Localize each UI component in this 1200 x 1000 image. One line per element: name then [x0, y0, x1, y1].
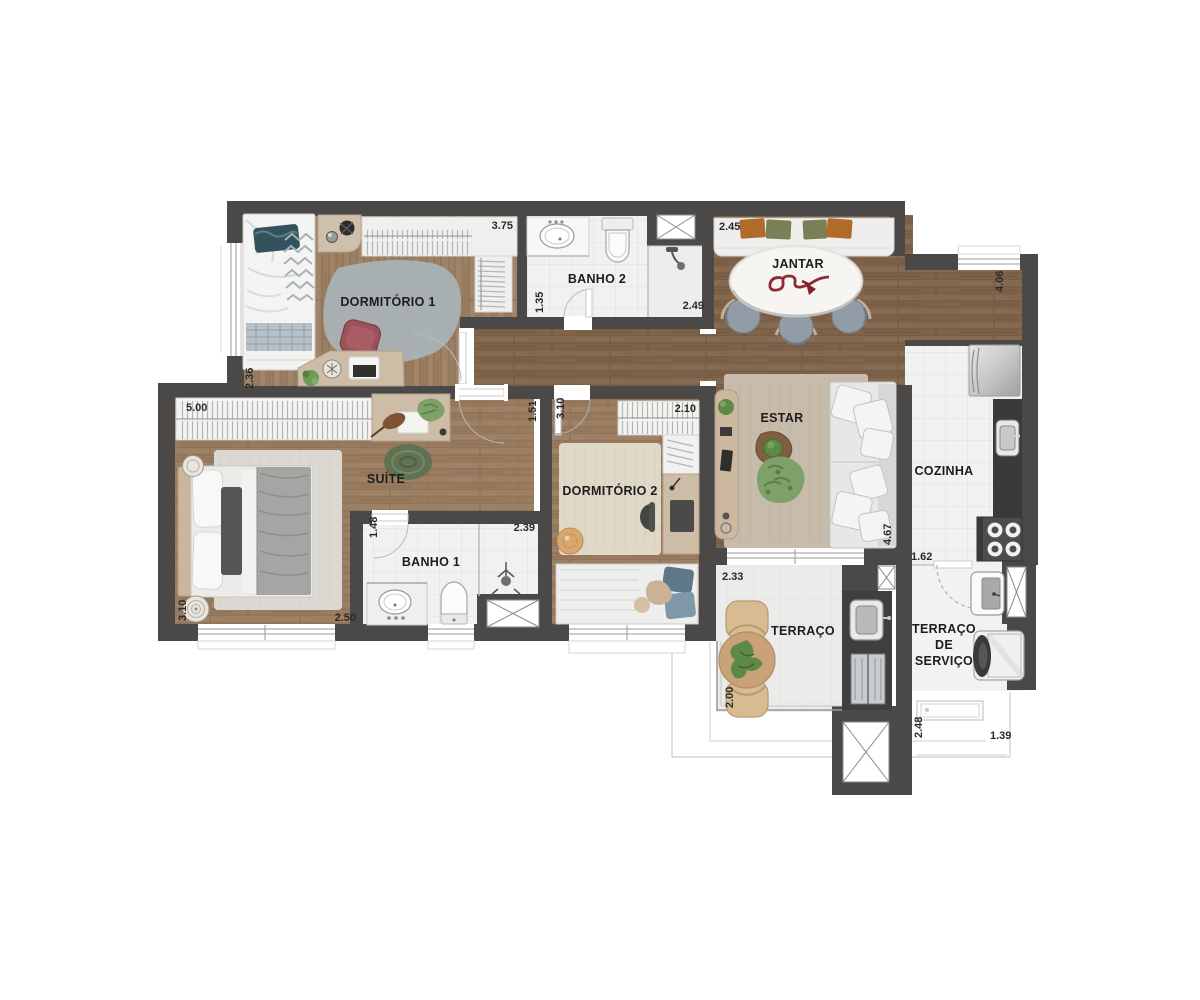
svg-text:SUÍTE: SUÍTE	[367, 471, 405, 486]
svg-text:DE: DE	[935, 638, 953, 652]
svg-text:1.62: 1.62	[911, 551, 932, 563]
svg-text:1.35: 1.35	[534, 292, 546, 313]
svg-text:JANTAR: JANTAR	[772, 257, 824, 271]
svg-text:4.06: 4.06	[994, 271, 1006, 292]
svg-text:2.50: 2.50	[335, 612, 356, 624]
svg-text:SERVIÇO: SERVIÇO	[915, 654, 973, 668]
svg-text:1.39: 1.39	[990, 730, 1011, 742]
svg-text:2.39: 2.39	[514, 522, 535, 534]
svg-text:2.36: 2.36	[244, 368, 256, 389]
svg-text:5.00: 5.00	[186, 402, 207, 414]
svg-text:2.48: 2.48	[913, 717, 925, 738]
svg-text:3.10: 3.10	[555, 398, 567, 419]
svg-text:DORMITÓRIO 2: DORMITÓRIO 2	[562, 483, 657, 498]
svg-text:COZINHA: COZINHA	[914, 464, 973, 478]
svg-text:3.75: 3.75	[492, 220, 513, 232]
svg-text:2.00: 2.00	[724, 687, 736, 708]
svg-text:3.10: 3.10	[177, 600, 189, 621]
svg-text:BANHO 1: BANHO 1	[402, 555, 460, 569]
svg-text:DORMITÓRIO 1: DORMITÓRIO 1	[340, 294, 435, 309]
svg-text:2.49: 2.49	[683, 300, 704, 312]
svg-text:4.67: 4.67	[882, 524, 894, 545]
svg-text:BANHO 2: BANHO 2	[568, 272, 626, 286]
svg-text:1.48: 1.48	[368, 517, 380, 538]
svg-text:TERRAÇO: TERRAÇO	[912, 622, 976, 636]
svg-text:2.10: 2.10	[675, 403, 696, 415]
svg-text:2.45: 2.45	[719, 221, 740, 233]
svg-text:ESTAR: ESTAR	[761, 411, 804, 425]
svg-text:1.51: 1.51	[527, 401, 539, 422]
svg-text:2.33: 2.33	[722, 571, 743, 583]
svg-text:TERRAÇO: TERRAÇO	[771, 624, 835, 638]
